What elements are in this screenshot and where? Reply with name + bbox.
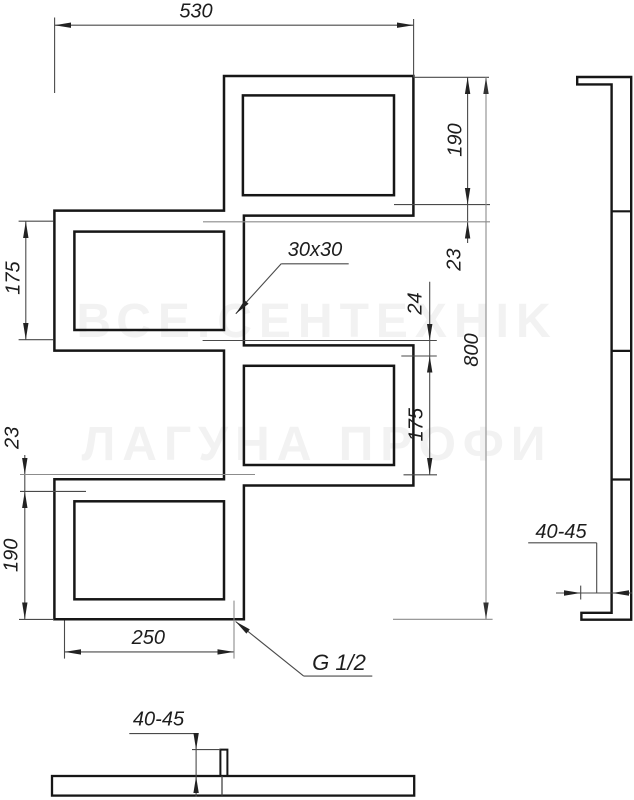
svg-text:190: 190 [445, 123, 467, 156]
svg-text:40-45: 40-45 [133, 709, 185, 731]
svg-text:24: 24 [405, 292, 427, 315]
svg-text:530: 530 [179, 1, 212, 23]
svg-text:23: 23 [2, 427, 24, 450]
svg-text:175: 175 [3, 261, 25, 295]
svg-text:ЛАГУНА ПРОФИ: ЛАГУНА ПРОФИ [82, 418, 553, 471]
svg-text:40-45: 40-45 [535, 521, 587, 543]
svg-text:190: 190 [1, 539, 23, 572]
svg-text:175: 175 [406, 407, 428, 441]
svg-text:250: 250 [131, 627, 165, 649]
svg-text:23: 23 [444, 248, 466, 271]
svg-text:800: 800 [461, 333, 483, 366]
svg-text:30х30: 30х30 [288, 239, 343, 261]
svg-text:G 1/2: G 1/2 [312, 650, 366, 675]
